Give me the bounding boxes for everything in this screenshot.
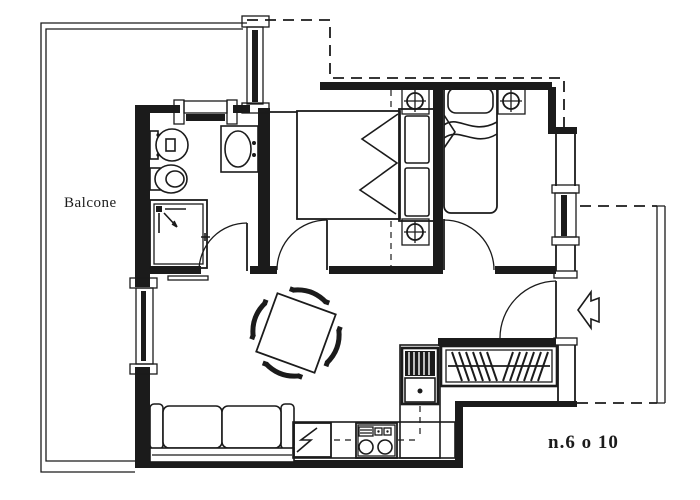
balcony-label: Balcone — [64, 195, 117, 211]
washbasin — [221, 126, 258, 172]
entrance-arrow — [578, 292, 599, 328]
floor-plan-page: Balcone — [0, 0, 700, 500]
radiator — [441, 346, 557, 386]
bathroom-threshold — [168, 276, 208, 280]
unit-number-label: n.6 o 10 — [548, 432, 619, 453]
sofa — [150, 404, 294, 462]
single-bedroom-door — [444, 219, 494, 270]
column-marker — [402, 88, 429, 114]
living-window — [130, 278, 157, 374]
fridge — [294, 423, 331, 457]
master-bedroom-door — [277, 220, 327, 270]
column-marker — [402, 219, 429, 245]
terrace-railing — [657, 206, 665, 403]
entrance-door — [500, 281, 556, 338]
double-bed — [265, 109, 434, 221]
dining-table — [240, 277, 352, 389]
bidet — [150, 165, 187, 193]
floor-plan-svg: Balcone — [0, 0, 700, 500]
single-bedroom-window — [552, 185, 579, 245]
kitchen-sink — [402, 348, 438, 404]
column-marker — [498, 88, 525, 114]
toilet — [150, 129, 188, 161]
bathroom-window — [174, 100, 237, 124]
single-bed — [444, 84, 497, 213]
cooktop — [356, 423, 397, 458]
bedroom-balcony-window — [242, 16, 269, 113]
